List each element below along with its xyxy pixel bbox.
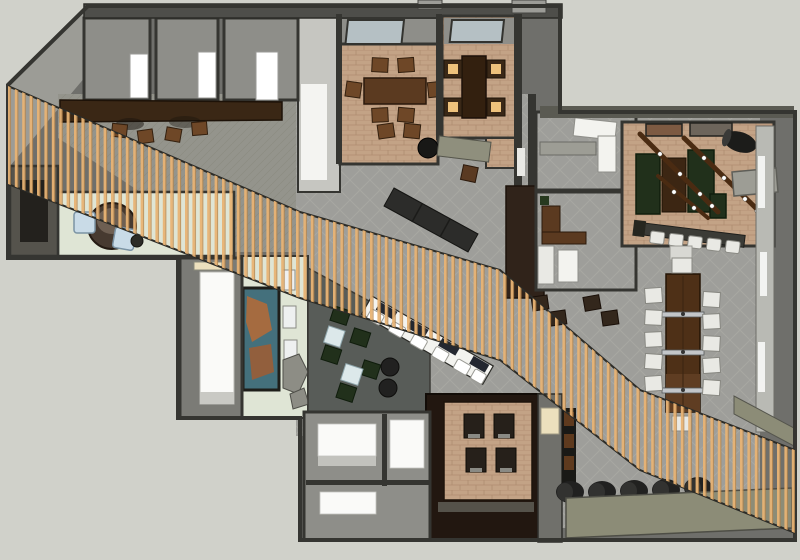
- meeting-table-b: [462, 56, 486, 118]
- plant: [540, 196, 549, 205]
- bottom-rooms: [304, 412, 430, 540]
- bright-floor: [200, 272, 234, 404]
- pillar-light: [541, 408, 559, 434]
- shelf-items: [564, 412, 574, 470]
- gray-counter: [540, 142, 596, 155]
- doorway: [517, 148, 525, 176]
- round-table: [418, 138, 438, 158]
- skylight: [450, 20, 504, 42]
- wall-picture: [646, 124, 682, 136]
- meeting-table: [364, 78, 426, 104]
- white-panel: [198, 52, 216, 98]
- stairwell-block: [180, 258, 242, 418]
- skylight: [345, 20, 404, 44]
- meeting-room-b: [442, 16, 516, 138]
- floorplan-svg: [0, 0, 800, 560]
- brown-desk-return: [542, 232, 586, 244]
- white-table: [558, 250, 578, 282]
- white-desk-return: [598, 136, 616, 172]
- booth-zone: [426, 394, 576, 542]
- white-sofa: [538, 246, 554, 284]
- white-panel: [130, 54, 148, 98]
- game-room: [622, 122, 778, 254]
- chair: [460, 165, 478, 183]
- floorplan-render: [0, 0, 800, 560]
- white-panel: [256, 52, 278, 100]
- corridor-bright-floor: [301, 84, 327, 180]
- gray-rooms: [84, 18, 298, 100]
